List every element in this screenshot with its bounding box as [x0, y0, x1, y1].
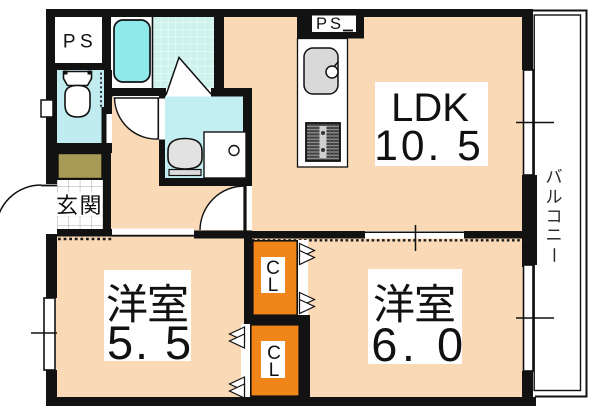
- svg-text:6. 0: 6. 0: [371, 318, 467, 371]
- svg-text:5. 5: 5. 5: [107, 316, 193, 369]
- svg-text:PS: PS: [63, 32, 97, 53]
- svg-text:L: L: [269, 360, 280, 381]
- svg-text:PS: PS: [316, 15, 344, 33]
- svg-text:10. 5: 10. 5: [374, 123, 484, 170]
- svg-text:L: L: [268, 275, 279, 296]
